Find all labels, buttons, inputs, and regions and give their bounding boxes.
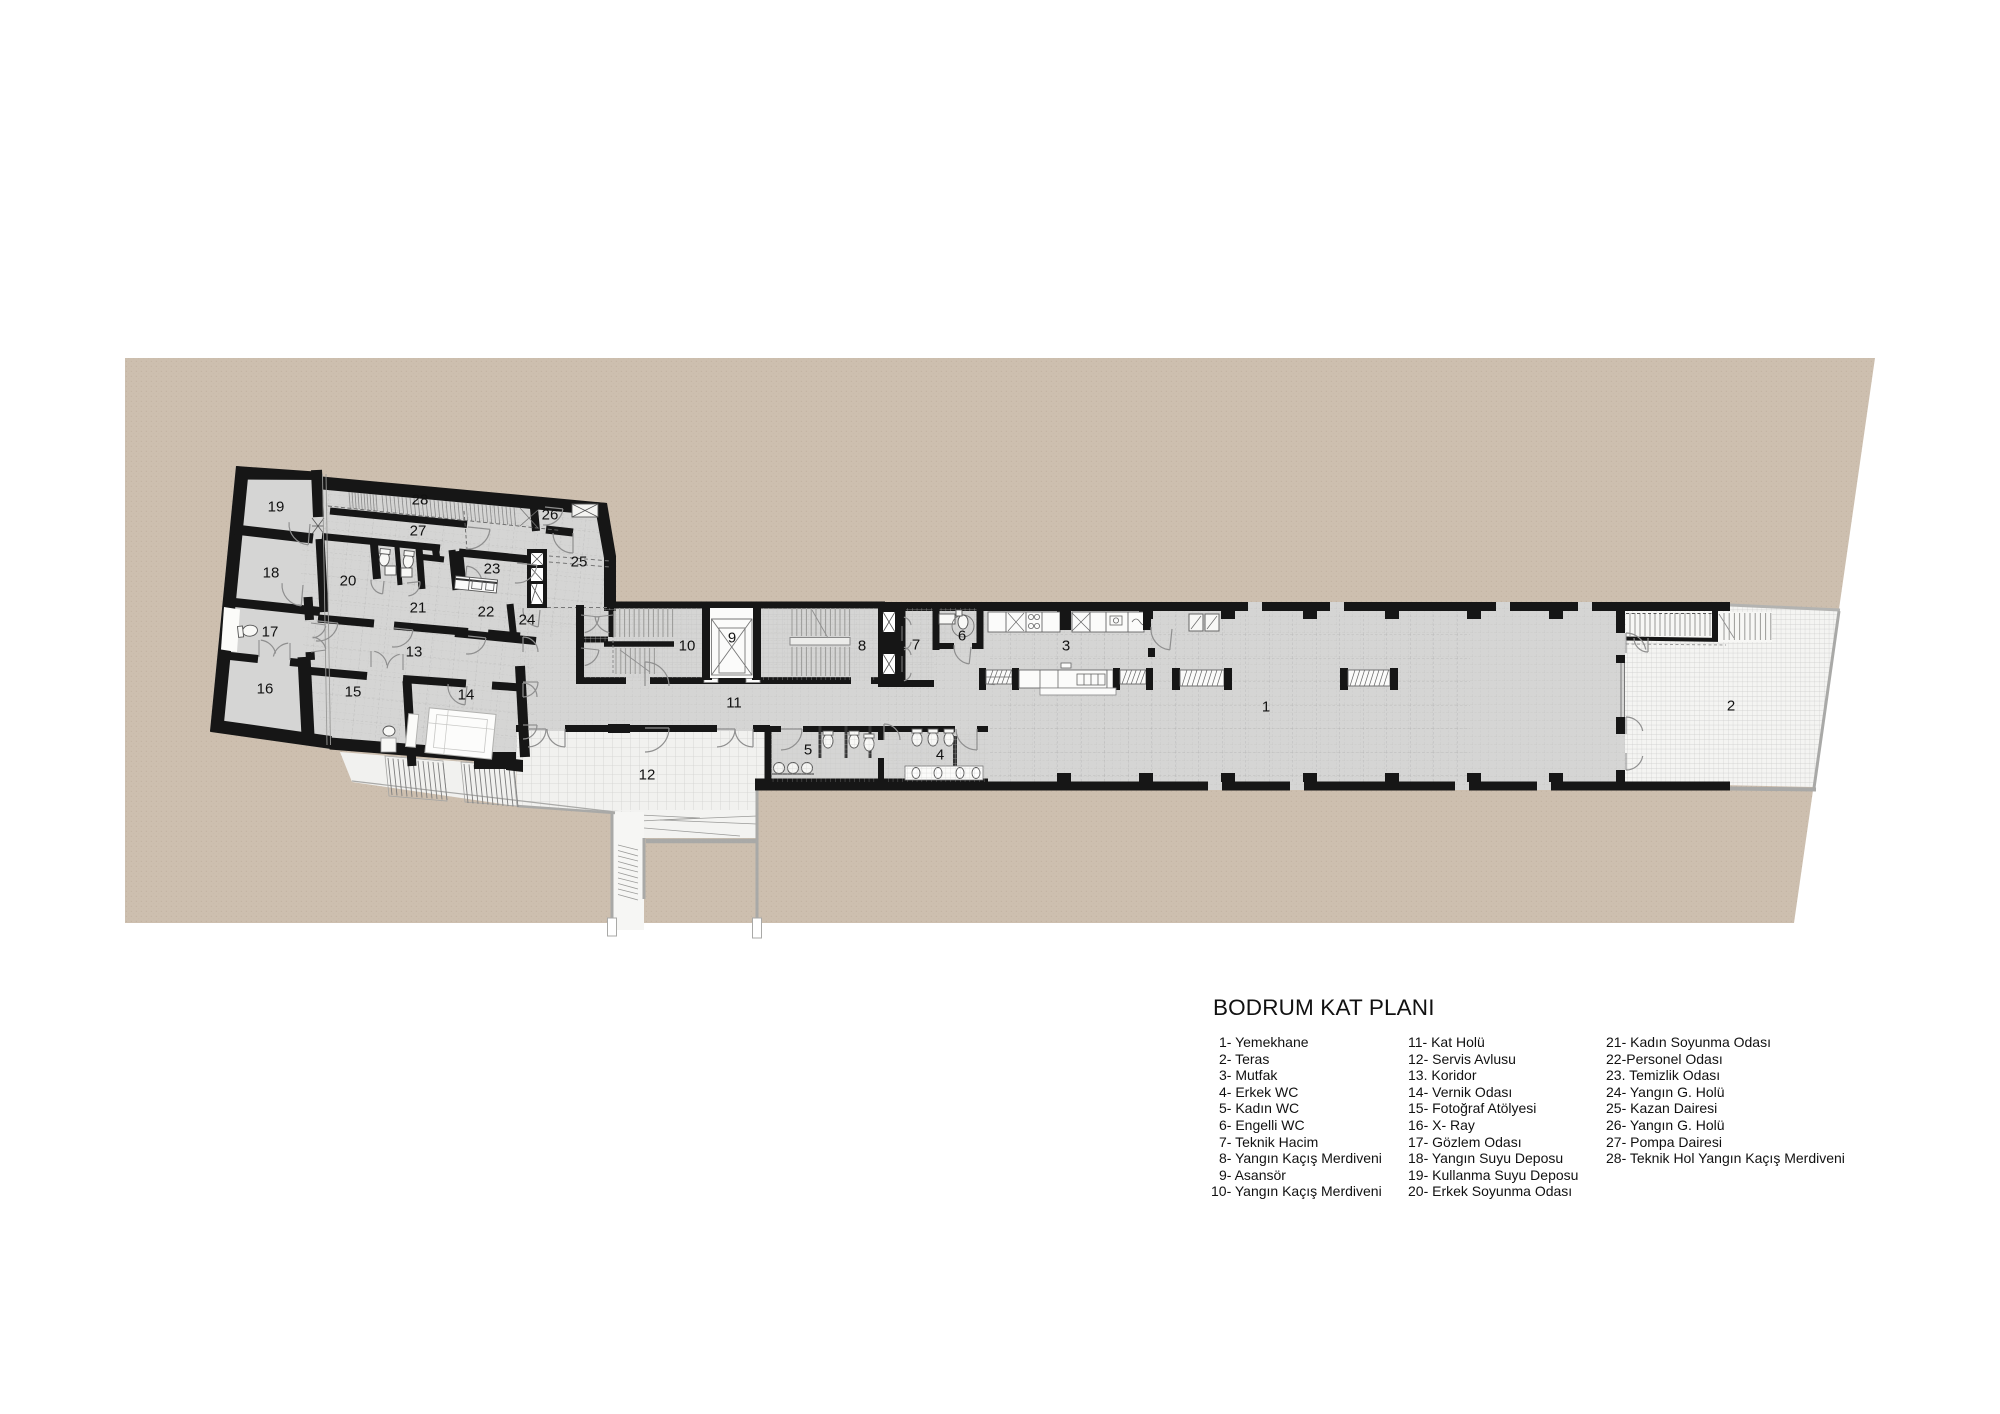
svg-text:11: 11 — [726, 695, 742, 712]
svg-text:5: 5 — [804, 742, 812, 759]
svg-text:6: 6 — [958, 628, 966, 645]
svg-text:22: 22 — [478, 604, 495, 621]
svg-text:26: 26 — [542, 507, 559, 524]
svg-text:14: 14 — [458, 687, 475, 704]
svg-text:12: 12 — [639, 767, 656, 784]
svg-text:18: 18 — [263, 565, 280, 582]
svg-text:10: 10 — [679, 638, 696, 655]
svg-text:3: 3 — [1062, 638, 1070, 655]
svg-text:2: 2 — [1727, 698, 1735, 715]
svg-text:27: 27 — [410, 523, 427, 540]
svg-text:1: 1 — [1262, 699, 1270, 716]
svg-text:7: 7 — [912, 637, 920, 654]
svg-text:19: 19 — [268, 499, 285, 516]
svg-text:17: 17 — [262, 624, 279, 641]
svg-text:8: 8 — [858, 638, 866, 655]
svg-text:20: 20 — [340, 573, 357, 590]
svg-text:23: 23 — [484, 561, 501, 578]
svg-text:16: 16 — [257, 681, 274, 698]
svg-text:24: 24 — [519, 612, 536, 629]
svg-text:9: 9 — [728, 630, 736, 647]
svg-text:4: 4 — [936, 747, 944, 764]
svg-text:25: 25 — [571, 554, 588, 571]
svg-text:15: 15 — [345, 684, 362, 701]
svg-text:21: 21 — [410, 600, 427, 617]
svg-text:13: 13 — [406, 644, 423, 661]
svg-text:28: 28 — [412, 492, 429, 509]
